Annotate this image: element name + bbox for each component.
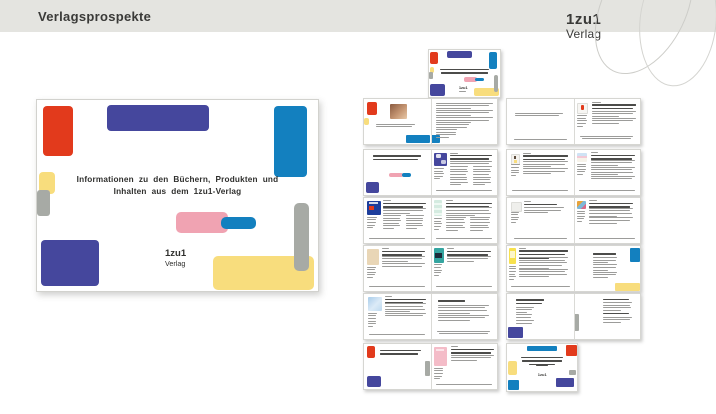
- text-lines-placeholder: [368, 313, 377, 329]
- thumb-spread-pages-22-23[interactable]: [363, 343, 498, 390]
- text-lines-placeholder: [519, 269, 568, 279]
- thumb-spread-pages-18-19-page-1: [364, 294, 431, 339]
- thumb-spread-pages-8-9[interactable]: [506, 149, 641, 196]
- decor-rect-yellow: [615, 283, 640, 291]
- footer-line-placeholder: [369, 238, 425, 241]
- text-lines-placeholder: [434, 264, 442, 277]
- cover-shape-blue-topright: [274, 106, 307, 177]
- footer-line-placeholder: [436, 190, 492, 193]
- text-lines-placeholder: [589, 217, 633, 225]
- thumb-spread-pages-18-19[interactable]: [363, 293, 498, 340]
- thumb-spread-pages-4-5[interactable]: [506, 98, 641, 145]
- decor-rect-blue: [527, 346, 557, 351]
- thumb-image-photo: [390, 104, 407, 119]
- thumb-spread-pages-12-13-page-2: [574, 198, 641, 243]
- text-lines-placeholder: [438, 305, 489, 315]
- text-lines-placeholder: [603, 317, 632, 325]
- heading-lines-placeholder: [536, 365, 547, 369]
- text-lines-placeholder: [509, 266, 516, 282]
- decor-rect-indigo: [556, 378, 574, 387]
- decor-rect-gray: [494, 75, 498, 92]
- text-lines-placeholder: [524, 207, 564, 215]
- decor-rect-gray: [425, 361, 430, 376]
- text-lines-placeholder: [516, 320, 533, 325]
- footer-line-placeholder: [579, 238, 635, 241]
- decor-rect-red: [430, 52, 438, 64]
- text-lines-placeholder: [511, 164, 520, 177]
- text-lines-placeholder: [434, 368, 443, 381]
- text-lines-placeholder: [516, 314, 532, 319]
- page-gutter: [574, 246, 575, 291]
- text-lines-placeholder: [603, 302, 632, 312]
- thumb-page-1-front-cover[interactable]: 1zu1: [428, 49, 501, 98]
- decor-rect-indigo: [430, 84, 445, 95]
- thumb-spread-pages-6-7[interactable]: [363, 149, 498, 196]
- page-gutter: [431, 246, 432, 291]
- text-lines-placeholder: [577, 211, 585, 224]
- thumb-spread-pages-16-17-page-1: [507, 246, 574, 291]
- cover-title-line2: Inhalten aus dem 1zu1-Verlag: [37, 186, 318, 198]
- thumb-spread-pages-20-21-page-1: [507, 294, 574, 339]
- text-lines-placeholder: [434, 168, 443, 181]
- footer-line-placeholder: [514, 139, 567, 142]
- cover-shape-red-topleft: [43, 106, 73, 156]
- page-title: Verlagsprospekte: [38, 9, 151, 24]
- thumb-spread-pages-22-23-page-2: [431, 344, 498, 389]
- thumb-image-yellowbook: [509, 248, 516, 264]
- verlagsprospekte-screen: Verlagsprospekte 1zu1 Verlag Information…: [0, 0, 716, 414]
- thumb-spread-pages-16-17[interactable]: [506, 245, 641, 292]
- thumb-spread-pages-12-13-page-1: [507, 198, 574, 243]
- text-lines-placeholder: [367, 267, 376, 280]
- text-lines-placeholder: [376, 124, 415, 129]
- thumb-spread-pages-22-23-page-1: [364, 344, 431, 389]
- cover-preview[interactable]: Informationen zu den Büchern, Produkten …: [36, 99, 319, 292]
- text-lines-placeholder: [523, 168, 568, 176]
- decor-rect-yellow: [364, 118, 369, 125]
- text-lines-placeholder: [385, 313, 426, 318]
- text-lines-placeholder: [383, 215, 401, 231]
- decor-rect-blue: [402, 173, 411, 176]
- thumb-spread-pages-6-7-page-2: [431, 150, 498, 195]
- thumb-page-1-front-cover-page-1: 1zu1: [429, 50, 500, 97]
- decor-rect-indigo: [366, 182, 379, 194]
- cover-title-line1: Informationen zu den Büchern, Produkten …: [37, 174, 318, 186]
- thumb-image-multi2: [577, 201, 586, 209]
- heading-lines-placeholder: [380, 350, 421, 357]
- thumb-spread-pages-18-19-page-2: [431, 294, 498, 339]
- footer-line-placeholder: [514, 238, 567, 241]
- thumb-image-figure: [577, 103, 588, 115]
- decor-rect-indigo: [447, 51, 473, 58]
- thumb-spread-pages-20-21-page-2: [574, 294, 641, 339]
- decor-rect-red: [367, 346, 376, 358]
- decor-rect-yellow: [508, 361, 517, 375]
- thumb-image-gray: [511, 202, 522, 212]
- footer-line-placeholder: [579, 190, 635, 193]
- thumb-spread-pages-6-7-page-1: [364, 150, 431, 195]
- text-lines-placeholder: [459, 91, 466, 94]
- cover-logo-line2: Verlag: [165, 260, 186, 267]
- cover-title: Informationen zu den Büchern, Produkten …: [37, 174, 318, 198]
- cover-shape-indigo-top: [107, 105, 209, 131]
- thumb-spread-pages-4-5-page-2: [574, 99, 641, 144]
- thumb-spread-pages-16-17-page-2: [574, 246, 641, 291]
- text-lines-placeholder: [577, 164, 586, 177]
- footer-line-placeholder: [580, 136, 633, 141]
- page-gutter: [574, 198, 575, 243]
- thumb-image-multi: [577, 153, 587, 162]
- mini-logo-text: 1zu1: [538, 373, 547, 377]
- decor-rect-blue: [406, 135, 431, 143]
- thumb-spread-pages-14-15[interactable]: [363, 245, 498, 292]
- decor-rect-gray: [429, 72, 433, 79]
- text-lines-placeholder: [438, 315, 489, 323]
- thumb-spread-pages-12-13[interactable]: [506, 197, 641, 244]
- decor-rect-blue: [489, 52, 498, 69]
- thumb-image-figure2: [511, 154, 520, 165]
- cover-shape-blue-center: [221, 217, 256, 229]
- thumb-spread-pages-2-3[interactable]: [363, 98, 498, 145]
- decor-rect-gray: [569, 370, 575, 376]
- thumb-spread-pages-14-15-page-2: [431, 246, 498, 291]
- thumb-spread-pages-8-9-page-2: [574, 150, 641, 195]
- text-lines-placeholder: [406, 215, 424, 231]
- footer-line-placeholder: [436, 238, 492, 241]
- footer-line-placeholder: [436, 286, 492, 289]
- page-gutter: [431, 294, 432, 339]
- heading-lines-placeholder: [593, 253, 616, 257]
- text-lines-placeholder: [577, 115, 586, 128]
- text-lines-placeholder: [592, 118, 636, 126]
- text-lines-placeholder: [451, 355, 494, 363]
- text-lines-placeholder: [591, 176, 635, 181]
- thumb-spread-pages-10-11-page-2: [431, 198, 498, 243]
- thumb-image-bookblue: [367, 201, 380, 215]
- thumb-spread-pages-2-3-page-2: [431, 99, 498, 144]
- footer-line-placeholder: [511, 286, 570, 289]
- text-lines-placeholder: [382, 263, 425, 268]
- thumb-spread-pages-10-11-page-1: [364, 198, 431, 243]
- thumb-page-24-back-cover[interactable]: 1zu1: [506, 343, 578, 392]
- thumb-image-teal: [434, 248, 444, 262]
- footer-line-placeholder: [512, 190, 568, 193]
- thumb-spread-pages-20-21[interactable]: [506, 293, 641, 340]
- text-lines-placeholder: [450, 166, 469, 187]
- text-lines-placeholder: [516, 307, 533, 315]
- text-lines-placeholder: [473, 166, 492, 187]
- decor-rect-red: [566, 345, 577, 356]
- cover-logo: 1zu1 Verlag: [165, 249, 186, 267]
- thumb-spread-pages-4-5-page-1: [507, 99, 574, 144]
- page-gutter: [431, 198, 432, 243]
- thumb-spread-pages-14-15-page-1: [364, 246, 431, 291]
- page-gutter: [431, 344, 432, 389]
- thumb-image-puzzle: [434, 153, 447, 167]
- thumb-image-water: [368, 297, 382, 311]
- page-gutter: [574, 150, 575, 195]
- footer-line-placeholder: [369, 334, 425, 337]
- footer-line-placeholder: [369, 286, 425, 289]
- heading-lines-placeholder: [516, 299, 544, 306]
- thumb-image-beige: [367, 249, 378, 265]
- page-gutter: [431, 99, 432, 144]
- footer-line-placeholder: [437, 331, 490, 336]
- footer-line-placeholder: [436, 384, 492, 387]
- heading-lines-placeholder: [440, 69, 490, 76]
- thumb-spread-pages-8-9-page-1: [507, 150, 574, 195]
- decor-rect-red: [367, 102, 376, 116]
- page-gutter: [574, 99, 575, 144]
- text-lines-placeholder: [367, 217, 376, 230]
- cover-shape-gray-right: [294, 203, 309, 271]
- text-lines-placeholder: [515, 113, 563, 118]
- cover-logo-line1: 1zu1: [165, 249, 186, 259]
- decor-rect-indigo: [367, 376, 382, 388]
- decor-rect-indigo: [508, 327, 523, 338]
- page-gutter: [431, 150, 432, 195]
- page-gutter: [574, 294, 575, 339]
- cover-shape-indigo-bottomleft: [41, 240, 99, 286]
- mini-logo-text: 1zu1: [459, 86, 468, 90]
- text-lines-placeholder: [593, 272, 617, 280]
- thumb-spread-pages-2-3-page-1: [364, 99, 431, 144]
- heading-lines-placeholder: [438, 300, 465, 304]
- heading-lines-placeholder: [373, 155, 421, 162]
- decor-rect-blue: [508, 380, 519, 390]
- thumb-page-24-back-cover-page-1: 1zu1: [507, 344, 577, 391]
- text-lines-placeholder: [511, 212, 519, 225]
- text-lines-placeholder: [470, 217, 490, 233]
- text-lines-placeholder: [447, 256, 491, 264]
- decor-rect-blue: [475, 78, 484, 81]
- text-lines-placeholder: [436, 129, 457, 139]
- text-lines-placeholder: [434, 218, 442, 231]
- thumb-spread-pages-10-11[interactable]: [363, 197, 498, 244]
- text-lines-placeholder: [446, 217, 466, 233]
- thumb-image-pink: [434, 347, 447, 366]
- thumb-image-mint: [434, 200, 443, 216]
- decor-rect-blue: [630, 248, 640, 262]
